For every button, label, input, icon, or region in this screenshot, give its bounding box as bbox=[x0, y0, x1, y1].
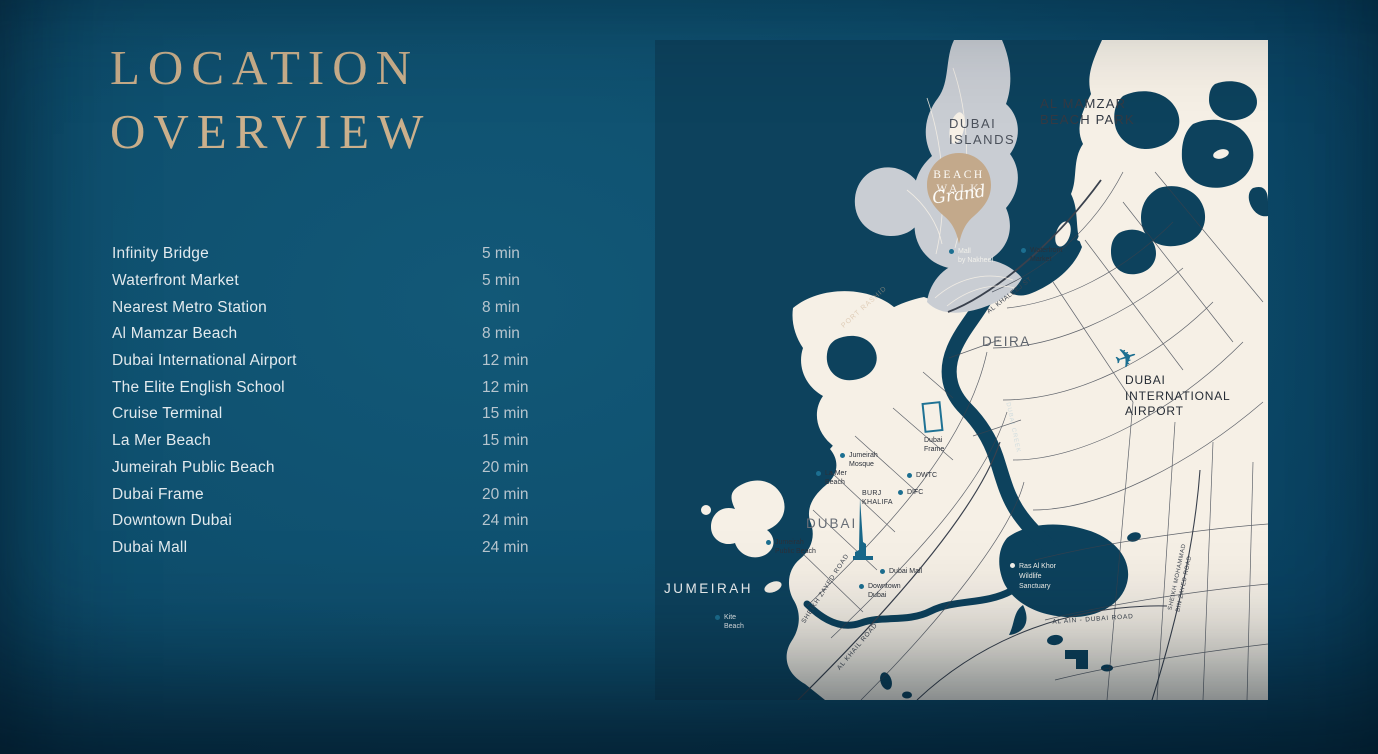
map-label-dubai-intl-airport: DUBAIINTERNATIONALAIRPORT bbox=[1125, 373, 1231, 420]
distance-name: Infinity Bridge bbox=[112, 245, 482, 263]
distance-time: 8 min bbox=[482, 325, 520, 343]
page-title-line1: LOCATION bbox=[110, 36, 431, 100]
map-label-difc: DIFC bbox=[898, 489, 923, 498]
map-label-dubai-frame: DubaiFrame bbox=[924, 437, 944, 455]
map-label-dubai-creek-watermark: DUBAI CREEK bbox=[1003, 402, 1021, 454]
map-label-text: AL KHAIL ROAD bbox=[836, 622, 880, 672]
map-label-text: DUBAIINTERNATIONALAIRPORT bbox=[1125, 373, 1231, 420]
map-label-text: Mallby Nakheel bbox=[958, 248, 993, 266]
map-label-text: DWTC bbox=[916, 472, 937, 481]
distance-time: 15 min bbox=[482, 405, 529, 423]
poi-dot-icon bbox=[907, 473, 912, 478]
distance-time: 20 min bbox=[482, 486, 529, 504]
distance-row: Dubai Mall24 min bbox=[112, 535, 582, 562]
distance-time: 12 min bbox=[482, 379, 529, 397]
map-label-burj-khalifa: BURJKHALIFA bbox=[862, 490, 893, 508]
map-label-text: DUBAI CREEK bbox=[1003, 402, 1021, 454]
map-label-al-mamzar-beach-park: AL MAMZARBEACH PARK bbox=[1040, 96, 1135, 129]
poi-dot-icon bbox=[880, 569, 885, 574]
map-label-downtown-dubai: DowntownDubai bbox=[859, 583, 901, 601]
distance-name: La Mer Beach bbox=[112, 432, 482, 450]
map-label-al-khaleej-st: AL KHALEEJ ST bbox=[986, 276, 1034, 316]
distance-name: Jumeirah Public Beach bbox=[112, 459, 482, 477]
distance-time: 5 min bbox=[482, 272, 520, 290]
map-label-text: DUBAI bbox=[806, 516, 857, 533]
pin-text-beach: BEACH bbox=[926, 169, 992, 181]
distance-name: Nearest Metro Station bbox=[112, 299, 482, 317]
map-label-text: La MerBeach bbox=[825, 470, 847, 488]
map-label-text: SHEIKH ZAYED ROAD bbox=[800, 553, 851, 626]
map-label-text: WaterfrontMarket bbox=[1030, 247, 1062, 265]
map-label-text: KiteBeach bbox=[724, 614, 744, 632]
map-label-sheikh-zayed-road: SHEIKH ZAYED ROAD bbox=[800, 553, 851, 626]
map-label-text: BURJKHALIFA bbox=[862, 490, 893, 508]
map-label-port-rashid-watermark: PORT RASHID bbox=[840, 285, 889, 331]
map-label-text: DUBAIISLANDS bbox=[949, 116, 1015, 149]
distance-row: Nearest Metro Station8 min bbox=[112, 294, 582, 321]
distance-list: Infinity Bridge5 minWaterfront Market5 m… bbox=[112, 241, 582, 561]
map-label-al-ain-dubai-road: AL AIN - DUBAI ROAD bbox=[1052, 613, 1134, 627]
map-label-text: AL KHALEEJ ST bbox=[986, 276, 1034, 316]
map-label-sheikh-mohammad-bin-zayed-road: SHEIKH MOHAMMADBIN ZAYED ROAD bbox=[1168, 543, 1197, 612]
map-label-dwtc: DWTC bbox=[907, 472, 937, 481]
map-label-dubai-mall: Dubai Mall bbox=[880, 568, 922, 577]
map-label-deira: DEIRA bbox=[982, 334, 1031, 351]
poi-dot-icon bbox=[859, 584, 864, 589]
map-label-text: DubaiFrame bbox=[924, 437, 944, 455]
map-label-al-khail-road: AL KHAIL ROAD bbox=[836, 622, 880, 672]
poi-dot-icon bbox=[949, 249, 954, 254]
distance-row: Al Mamzar Beach8 min bbox=[112, 321, 582, 348]
map-label-text: Ras Al KhorWildlifeSanctuary bbox=[1019, 562, 1056, 592]
distance-name: Al Mamzar Beach bbox=[112, 325, 482, 343]
distance-row: Waterfront Market5 min bbox=[112, 268, 582, 295]
distance-name: Dubai Mall bbox=[112, 539, 482, 557]
map-label-text: AL AIN - DUBAI ROAD bbox=[1052, 613, 1134, 627]
map-label-text: JumeirahMosque bbox=[849, 452, 878, 470]
poi-dot-icon bbox=[898, 490, 903, 495]
distance-row: Dubai Frame20 min bbox=[112, 481, 582, 508]
map-label-jumeirah-public-beach: JumeirahPublic Beach bbox=[766, 539, 816, 557]
distance-time: 15 min bbox=[482, 432, 529, 450]
distance-row: Cruise Terminal15 min bbox=[112, 401, 582, 428]
slide: LOCATION OVERVIEW Infinity Bridge5 minWa… bbox=[0, 0, 1378, 754]
distance-time: 24 min bbox=[482, 512, 529, 530]
distance-name: Waterfront Market bbox=[112, 272, 482, 290]
map-label-waterfront-market: WaterfrontMarket bbox=[1021, 247, 1062, 265]
map-label-mall-by-nakheel: Mallby Nakheel bbox=[949, 248, 993, 266]
distance-name: Downtown Dubai bbox=[112, 512, 482, 530]
map-label-text: DIFC bbox=[907, 489, 923, 498]
distance-row: Downtown Dubai24 min bbox=[112, 508, 582, 535]
poi-dot-icon bbox=[715, 615, 720, 620]
map-label-text: DEIRA bbox=[982, 334, 1031, 351]
poi-dot-icon bbox=[1010, 563, 1015, 568]
poi-dot-icon bbox=[816, 471, 821, 476]
map-label-jumeirah-region: JUMEIRAH bbox=[664, 581, 753, 598]
beachwalk-grand-pin: BEACH WALK Grand bbox=[926, 152, 992, 248]
map-label-text: SHEIKH MOHAMMADBIN ZAYED ROAD bbox=[1168, 543, 1197, 612]
map-label-jumeirah-mosque: JumeirahMosque bbox=[840, 452, 878, 470]
poi-dot-icon bbox=[1021, 248, 1026, 253]
map-label-text: Dubai Mall bbox=[889, 568, 922, 577]
distance-time: 8 min bbox=[482, 299, 520, 317]
map-label-text: DowntownDubai bbox=[868, 583, 901, 601]
map-labels-layer: DUBAIISLANDSAL MAMZARBEACH PARKDEIRADUBA… bbox=[655, 40, 1268, 700]
distance-row: Dubai International Airport12 min bbox=[112, 348, 582, 375]
page-title-line2: OVERVIEW bbox=[110, 100, 431, 164]
map-label-text: PORT RASHID bbox=[840, 285, 889, 331]
map-label-text: AL MAMZARBEACH PARK bbox=[1040, 96, 1135, 129]
distance-row: The Elite English School12 min bbox=[112, 374, 582, 401]
dubai-map: ✈ BEACH WALK Grand DUBAIISLANDSAL MAMZAR… bbox=[655, 40, 1268, 700]
map-label-text: JUMEIRAH bbox=[664, 581, 753, 598]
map-label-kite-beach: KiteBeach bbox=[715, 614, 744, 632]
distance-name: The Elite English School bbox=[112, 379, 482, 397]
map-label-text: JumeirahPublic Beach bbox=[775, 539, 816, 557]
distance-time: 24 min bbox=[482, 539, 529, 557]
distance-time: 12 min bbox=[482, 352, 529, 370]
poi-dot-icon bbox=[840, 453, 845, 458]
map-label-la-mer-beach: La MerBeach bbox=[816, 470, 847, 488]
map-label-ras-al-khor: Ras Al KhorWildlifeSanctuary bbox=[1010, 562, 1056, 592]
poi-dot-icon bbox=[766, 540, 771, 545]
distance-row: La Mer Beach15 min bbox=[112, 428, 582, 455]
distance-time: 5 min bbox=[482, 245, 520, 263]
distance-name: Dubai International Airport bbox=[112, 352, 482, 370]
distance-name: Cruise Terminal bbox=[112, 405, 482, 423]
page-title: LOCATION OVERVIEW bbox=[110, 36, 431, 163]
map-label-dubai-city: DUBAI bbox=[806, 516, 857, 533]
map-label-dubai-islands: DUBAIISLANDS bbox=[949, 116, 1015, 149]
distance-row: Infinity Bridge5 min bbox=[112, 241, 582, 268]
distance-name: Dubai Frame bbox=[112, 486, 482, 504]
distance-time: 20 min bbox=[482, 459, 529, 477]
distance-row: Jumeirah Public Beach20 min bbox=[112, 455, 582, 482]
